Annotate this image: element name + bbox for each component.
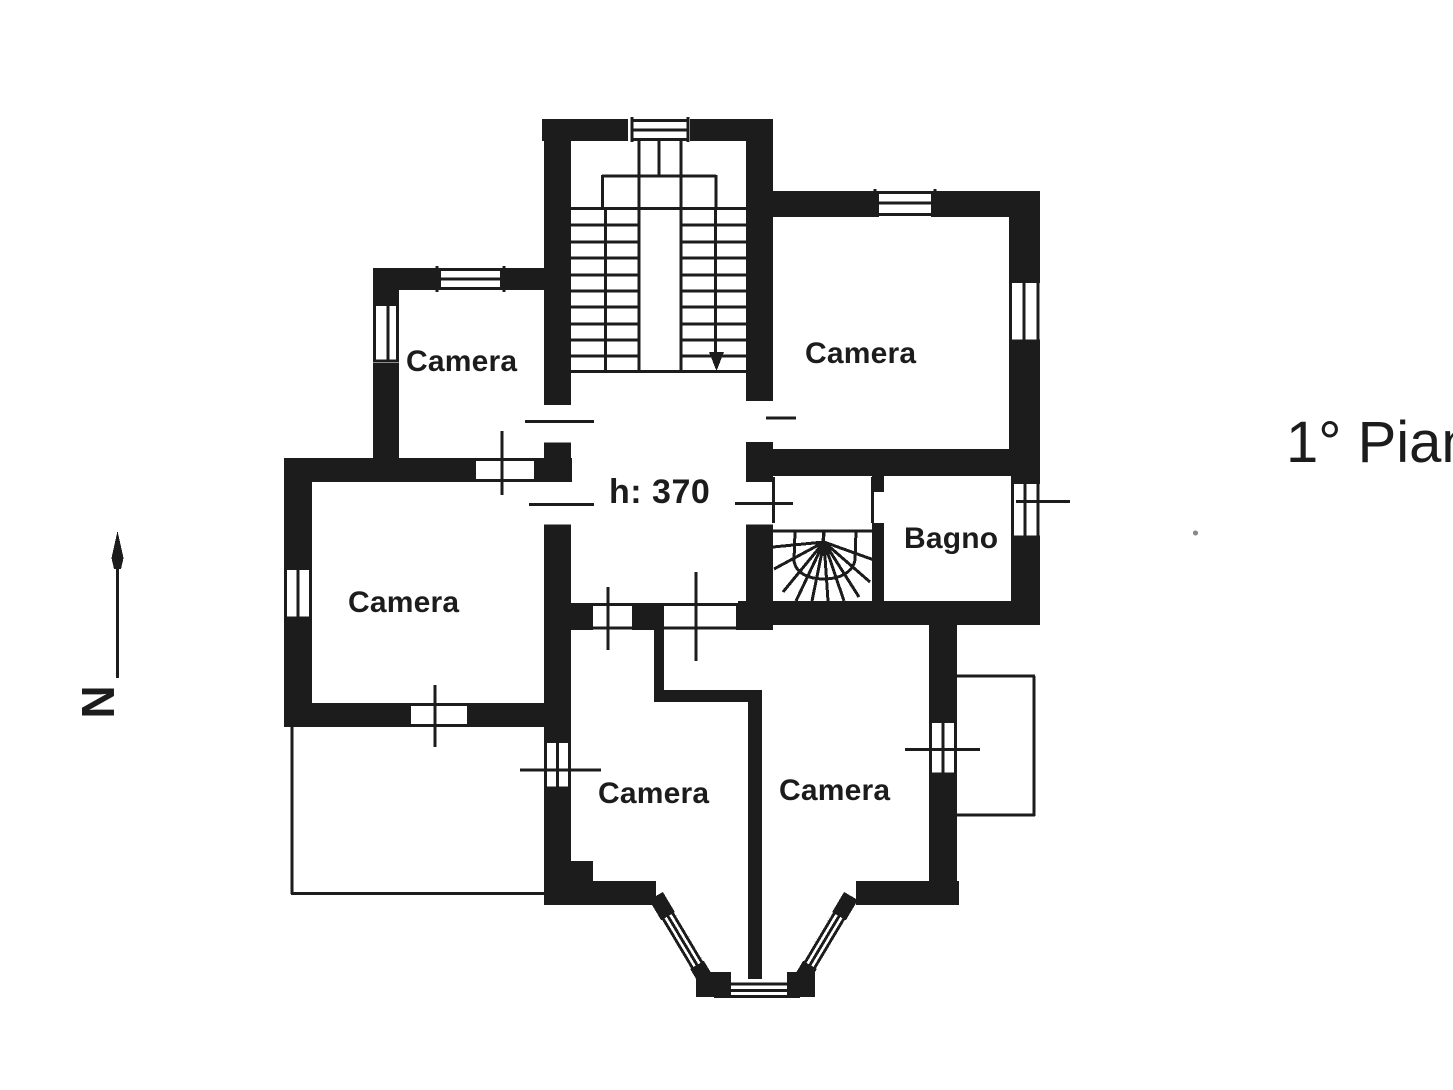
svg-text:N: N [72, 685, 124, 718]
svg-text:Camera: Camera [598, 777, 709, 810]
svg-text:Bagno: Bagno [904, 522, 998, 555]
svg-text:1° Piano: 1° Piano [1286, 410, 1453, 475]
svg-text:Camera: Camera [348, 586, 459, 619]
svg-text:Camera: Camera [406, 345, 517, 378]
svg-text:h: 370: h: 370 [609, 473, 710, 511]
svg-text:Camera: Camera [779, 774, 890, 807]
svg-text:Camera: Camera [805, 337, 916, 370]
